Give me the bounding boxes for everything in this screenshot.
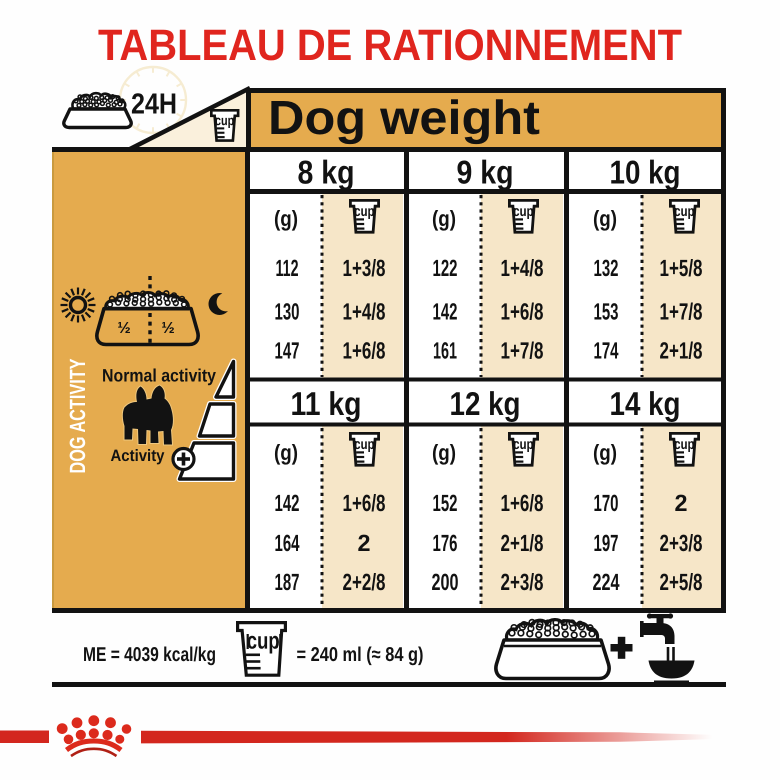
svg-text:142: 142	[275, 490, 300, 516]
svg-text:2: 2	[675, 490, 688, 516]
svg-text:112: 112	[276, 255, 299, 281]
svg-text:(g): (g)	[593, 440, 617, 465]
svg-text:1+6/8: 1+6/8	[343, 338, 386, 364]
svg-text:1+6/8: 1+6/8	[501, 299, 544, 325]
svg-text:8 kg: 8 kg	[298, 154, 355, 191]
svg-text:224: 224	[593, 569, 620, 595]
svg-text:200: 200	[432, 569, 459, 595]
svg-text:132: 132	[594, 255, 619, 281]
svg-text:Normal activity: Normal activity	[102, 366, 216, 386]
svg-text:1+5/8: 1+5/8	[660, 255, 703, 281]
svg-text:2+3/8: 2+3/8	[660, 530, 703, 556]
svg-text:2+1/8: 2+1/8	[660, 338, 703, 364]
svg-text:Activity: Activity	[111, 447, 166, 465]
svg-text:142: 142	[433, 299, 458, 325]
svg-text:11 kg: 11 kg	[291, 385, 362, 422]
svg-text:1+4/8: 1+4/8	[501, 255, 544, 281]
svg-text:147: 147	[275, 338, 300, 364]
svg-text:TABLEAU DE RATIONNEMENT: TABLEAU DE RATIONNEMENT	[98, 21, 682, 70]
svg-text:1+3/8: 1+3/8	[343, 255, 386, 281]
svg-text:(g): (g)	[274, 440, 298, 465]
svg-text:152: 152	[433, 490, 458, 516]
svg-text:1+6/8: 1+6/8	[501, 490, 544, 516]
svg-text:ME = 4039 kcal/kg: ME = 4039 kcal/kg	[83, 644, 216, 666]
svg-text:12 kg: 12 kg	[450, 385, 521, 422]
svg-text:164: 164	[275, 530, 300, 556]
svg-text:130: 130	[275, 299, 300, 325]
svg-text:DOG ACTIVITY: DOG ACTIVITY	[65, 358, 90, 473]
svg-text:161: 161	[433, 338, 457, 364]
svg-text:(g): (g)	[432, 206, 456, 231]
svg-text:176: 176	[433, 530, 458, 556]
svg-text:122: 122	[433, 255, 458, 281]
svg-text:1+7/8: 1+7/8	[660, 299, 703, 325]
svg-text:1+4/8: 1+4/8	[343, 299, 386, 325]
svg-text:= 240 ml (≈ 84 g): = 240 ml (≈ 84 g)	[297, 644, 424, 666]
svg-text:2: 2	[358, 530, 371, 556]
svg-text:(g): (g)	[593, 206, 617, 231]
svg-text:2+3/8: 2+3/8	[501, 569, 544, 595]
svg-text:1+6/8: 1+6/8	[343, 490, 386, 516]
svg-text:2+1/8: 2+1/8	[501, 530, 544, 556]
svg-text:Dog weight: Dog weight	[268, 92, 540, 145]
svg-text:10 kg: 10 kg	[610, 154, 681, 191]
svg-text:153: 153	[594, 299, 619, 325]
svg-text:14 kg: 14 kg	[610, 385, 681, 422]
svg-text:187: 187	[275, 569, 300, 595]
svg-text:2+2/8: 2+2/8	[343, 569, 386, 595]
svg-text:174: 174	[594, 338, 619, 364]
svg-text:½: ½	[161, 320, 174, 337]
svg-text:9 kg: 9 kg	[457, 154, 514, 191]
svg-text:1+7/8: 1+7/8	[501, 338, 544, 364]
svg-text:170: 170	[594, 490, 619, 516]
svg-text:2+5/8: 2+5/8	[660, 569, 703, 595]
svg-text:(g): (g)	[432, 440, 456, 465]
svg-text:197: 197	[594, 530, 619, 556]
svg-text:(g): (g)	[274, 206, 298, 231]
svg-text:½: ½	[117, 320, 130, 337]
